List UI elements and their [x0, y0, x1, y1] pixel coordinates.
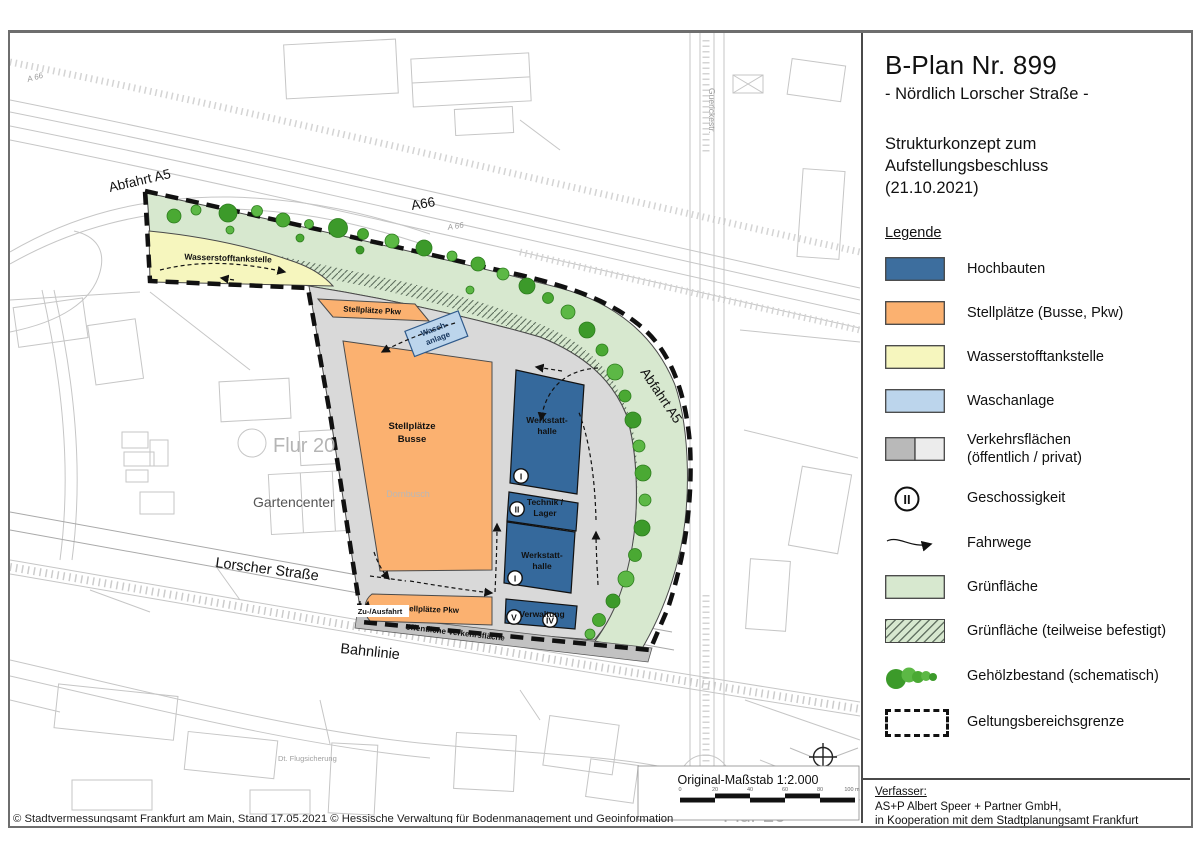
title-legend-panel: B-Plan Nr. 899 - Nördlich Lorscher Straß… [861, 32, 1190, 823]
site-plan-map: I II I V IV Wasserstofftankstelle Stellp… [10, 32, 861, 823]
label-technik-1: Technik / [527, 497, 564, 507]
label-a66-small-mid: A 66 [446, 220, 465, 232]
wasserstoff-swatch [885, 345, 945, 369]
label-gartencenter: Gartencenter [253, 494, 335, 510]
stellplaetze-swatch [885, 301, 945, 325]
legend-label: Grünfläche [967, 578, 1038, 596]
label-werkstatt2-2: halle [532, 561, 552, 571]
legend-item-wasserstofftankstelle: Wasserstofftankstelle [885, 343, 1190, 370]
legend-item-gruenflaeche: Grünfläche [885, 574, 1190, 601]
waschanlage-swatch [885, 389, 945, 413]
legend-item-hochbauten: Hochbauten [885, 255, 1190, 282]
label-a66-small-left: A 66 [25, 71, 45, 85]
legend-label-line1: Verkehrsflächen [967, 432, 1071, 448]
author-line2: in Kooperation mit dem Stadtplanungsamt … [875, 814, 1178, 829]
legend-label: Gehölzbestand (schematisch) [967, 667, 1159, 685]
scale-tick-20: 20 [712, 787, 718, 793]
label-dornbusch: Dornbusch [386, 489, 430, 499]
legend-label-line2: (öffentlich / privat) [967, 450, 1082, 466]
label-werkstatt1-1: Werkstatt- [526, 415, 568, 425]
scale-tick-40: 40 [747, 787, 753, 793]
gruenflaeche-swatch [885, 575, 945, 599]
legend-label: Waschanlage [967, 392, 1054, 410]
label-zu-ausfahrt: Zu-/Ausfahrt [358, 607, 403, 616]
legend-label: Fahrwege [967, 534, 1031, 552]
legend-item-fahrwege: Fahrwege [885, 530, 1190, 557]
legend-item-verkehrsflaechen: Verkehrsflächen (öffentlich / privat) [885, 431, 1190, 467]
legend-label: Stellplätze (Busse, Pkw) [967, 304, 1123, 322]
author-heading: Verfasser: [875, 785, 1178, 800]
legend-label: Wasserstofftankstelle [967, 348, 1104, 366]
storey-verw-a: V [511, 613, 517, 623]
scale-tick-0: 0 [678, 787, 681, 793]
label-technik-2: Lager [533, 508, 557, 518]
label-bahnlinie: Bahnlinie [340, 641, 401, 663]
map-area: I II I V IV Wasserstofftankstelle Stellp… [10, 32, 861, 823]
storey-technik: II [515, 505, 520, 515]
fahrwege-icon [885, 533, 945, 553]
copyright-note: © Stadtvermessungsamt Frankfurt am Main,… [13, 813, 673, 823]
label-abfahrt-a5-left: Abfahrt A5 [107, 166, 172, 195]
plan-subtitle: - Nördlich Lorscher Straße - [885, 85, 1190, 104]
label-lorscher-strasse: Lorscher Straße [214, 555, 319, 584]
verkehrsflaechen-swatch [885, 437, 945, 461]
scale-tick-60: 60 [782, 787, 788, 793]
geltungsbereich-swatch [885, 709, 949, 737]
label-busse-1: Stellplätze [389, 421, 436, 432]
legend-item-stellplaetze: Stellplätze (Busse, Pkw) [885, 299, 1190, 326]
legend: Hochbauten Stellplätze (Busse, Pkw) Wass… [885, 255, 1190, 736]
scale-tick-80: 80 [817, 787, 823, 793]
legend-item-gehoelzbestand: Gehölzbestand (schematisch) [885, 662, 1190, 692]
legend-item-waschanlage: Waschanlage [885, 387, 1190, 414]
geschossigkeit-symbol: II [903, 492, 910, 507]
label-busse-2: Busse [398, 434, 427, 445]
legend-label: Hochbauten [967, 260, 1045, 278]
label-werkstatt1-2: halle [537, 426, 557, 436]
legend-label: Geschossigkeit [967, 489, 1065, 507]
plan-title: B-Plan Nr. 899 [885, 50, 1190, 81]
label-flugsicherung: Dt. Flugsicherung [278, 754, 337, 763]
legend-heading: Legende [885, 225, 1190, 241]
bplan-sheet: { "title_block": { "title": "B-Plan Nr. … [0, 0, 1200, 850]
gehoelzbestand-icon [885, 662, 945, 692]
legend-label: Grünfläche (teilweise befestigt) [967, 622, 1166, 640]
label-werkstatt2-1: Werkstatt- [521, 550, 563, 560]
legend-item-geschossigkeit: II Geschossigkeit [885, 485, 1190, 513]
scale-block: Original-Maßstab 1:2.000 0 20 40 60 80 1… [638, 766, 860, 820]
legend-label: Geltungsbereichsgrenze [967, 713, 1124, 731]
gruenflaeche-hatch-swatch [885, 619, 945, 643]
scale-label: Original-Maßstab 1:2.000 [677, 773, 818, 787]
label-guerickestr: Guerickestr. [707, 88, 717, 133]
scale-tick-100: 100 m [844, 787, 860, 793]
legend-item-gruenflaeche-befestigt: Grünfläche (teilweise befestigt) [885, 618, 1190, 645]
storey-w2: I [514, 574, 516, 584]
geschossigkeit-icon: II [885, 485, 945, 513]
author-line1: AS+P Albert Speer + Partner GmbH, [875, 800, 1178, 815]
legend-label: Verkehrsflächen (öffentlich / privat) [967, 431, 1082, 467]
hochbauten-swatch [885, 257, 945, 281]
storey-w1: I [520, 472, 522, 482]
label-a66: A66 [410, 194, 436, 213]
plan-concept: Strukturkonzept zum Aufstellungsbeschlus… [885, 134, 1123, 199]
author-block: Verfasser: AS+P Albert Speer + Partner G… [863, 778, 1190, 829]
label-verwaltung: Verwaltung [519, 609, 564, 619]
label-flur-20: Flur 20 [273, 435, 335, 457]
legend-item-geltungsbereichsgrenze: Geltungsbereichsgrenze [885, 709, 1190, 737]
